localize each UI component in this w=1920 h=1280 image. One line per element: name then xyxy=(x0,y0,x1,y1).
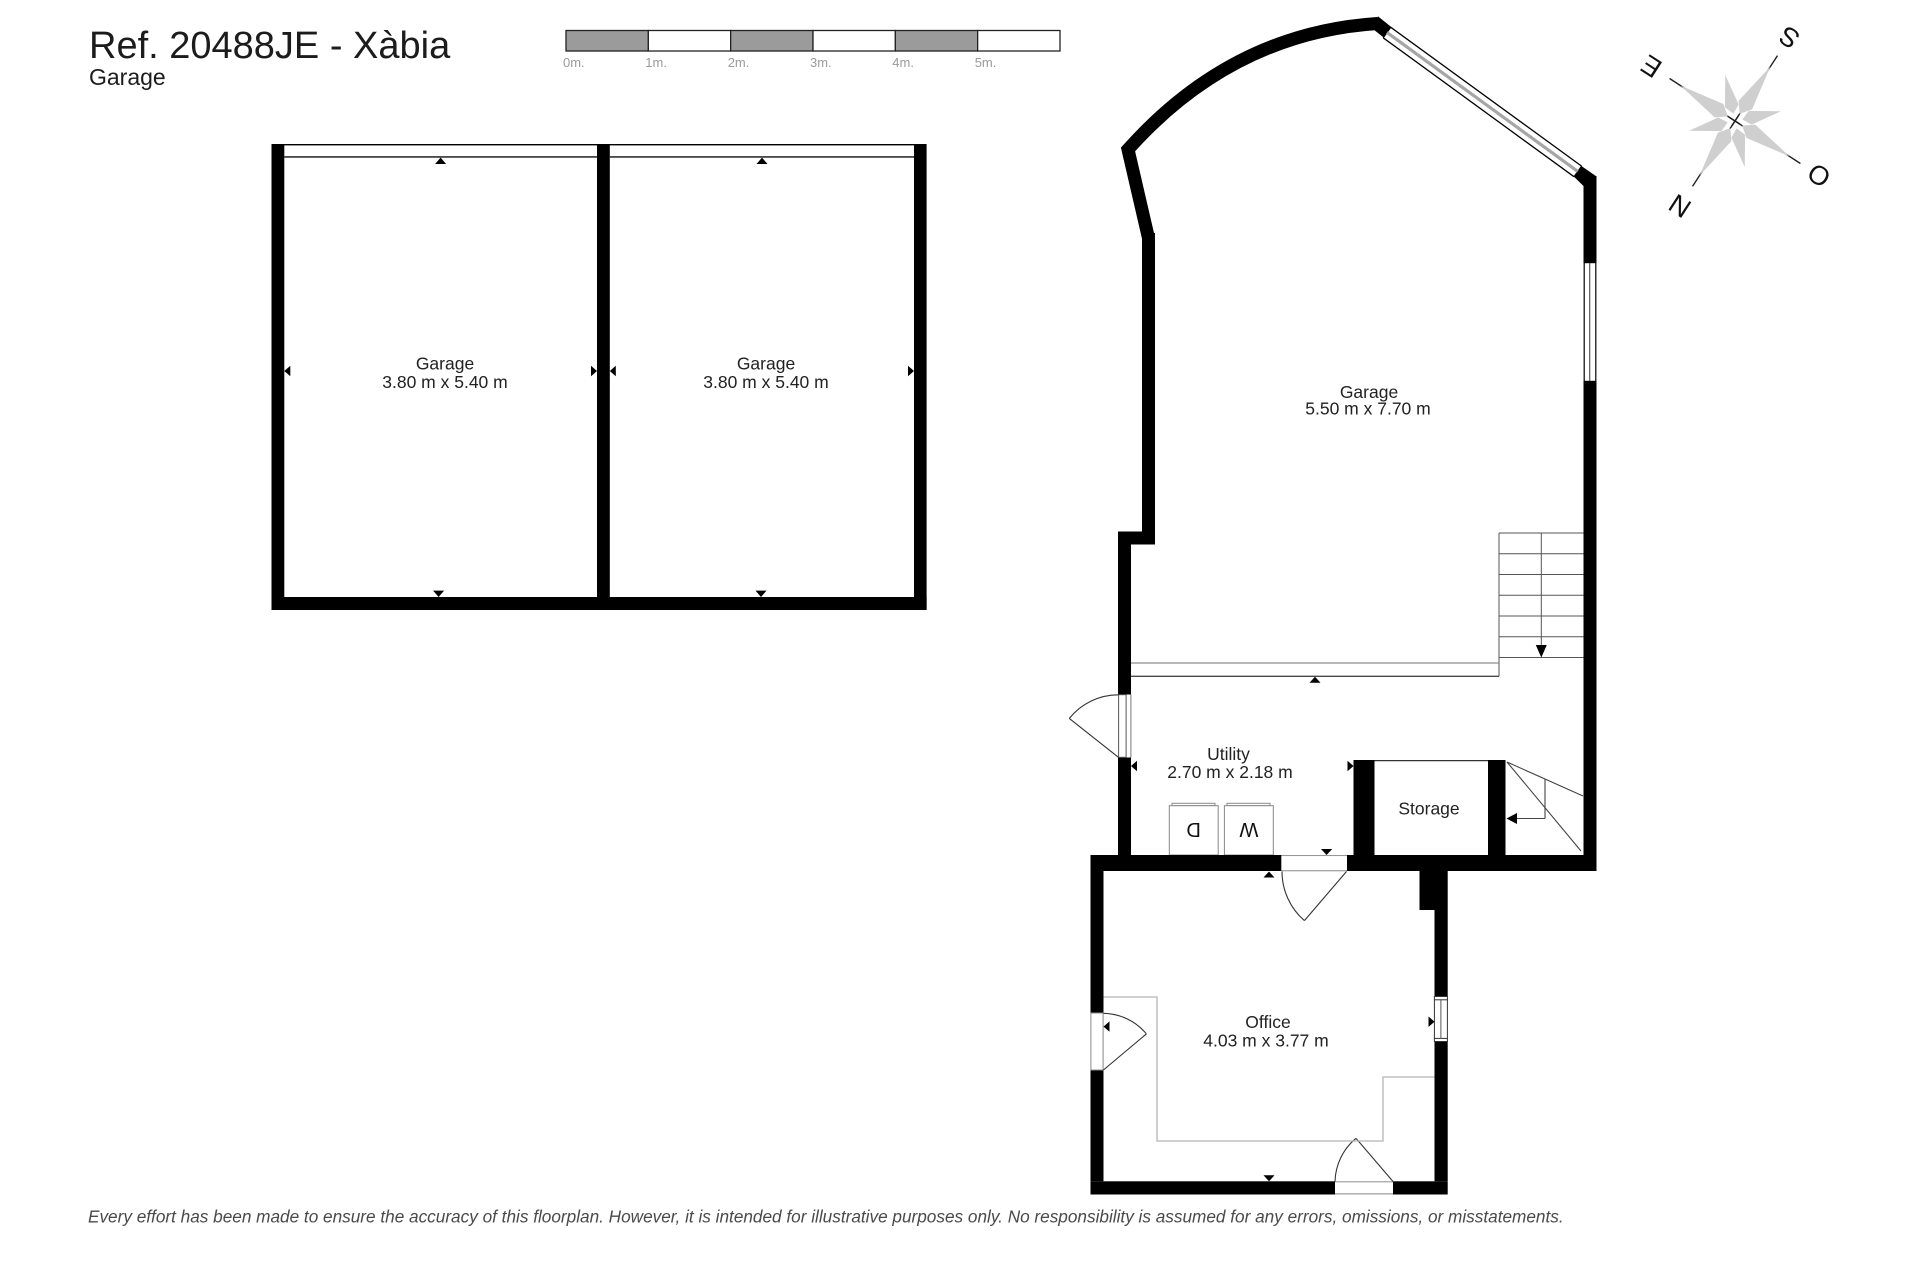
svg-text:Garage: Garage xyxy=(737,354,795,374)
svg-text:5.50 m x 7.70 m: 5.50 m x 7.70 m xyxy=(1305,399,1430,419)
svg-text:3.80 m x 5.40 m: 3.80 m x 5.40 m xyxy=(382,372,507,392)
svg-text:Utility: Utility xyxy=(1207,744,1250,764)
svg-text:Storage: Storage xyxy=(1398,799,1459,819)
svg-text:Every effort has been made to: Every effort has been made to ensure the… xyxy=(88,1207,1564,1227)
svg-text:D: D xyxy=(1186,818,1200,840)
svg-text:3.80 m x 5.40 m: 3.80 m x 5.40 m xyxy=(703,372,828,392)
svg-text:1m.: 1m. xyxy=(645,55,667,70)
svg-text:Garage: Garage xyxy=(89,64,166,90)
svg-text:Garage: Garage xyxy=(416,354,474,374)
svg-text:W: W xyxy=(1239,818,1258,840)
svg-text:4m.: 4m. xyxy=(892,55,914,70)
svg-text:4.03 m x 3.77 m: 4.03 m x 3.77 m xyxy=(1203,1031,1328,1051)
svg-text:3m.: 3m. xyxy=(810,55,832,70)
svg-text:2.70 m x 2.18 m: 2.70 m x 2.18 m xyxy=(1167,762,1292,782)
svg-text:0m.: 0m. xyxy=(563,55,585,70)
svg-text:2m.: 2m. xyxy=(728,55,750,70)
svg-text:5m.: 5m. xyxy=(975,55,997,70)
svg-text:Ref. 20488JE - Xàbia: Ref. 20488JE - Xàbia xyxy=(89,25,451,67)
svg-text:Office: Office xyxy=(1245,1012,1290,1032)
